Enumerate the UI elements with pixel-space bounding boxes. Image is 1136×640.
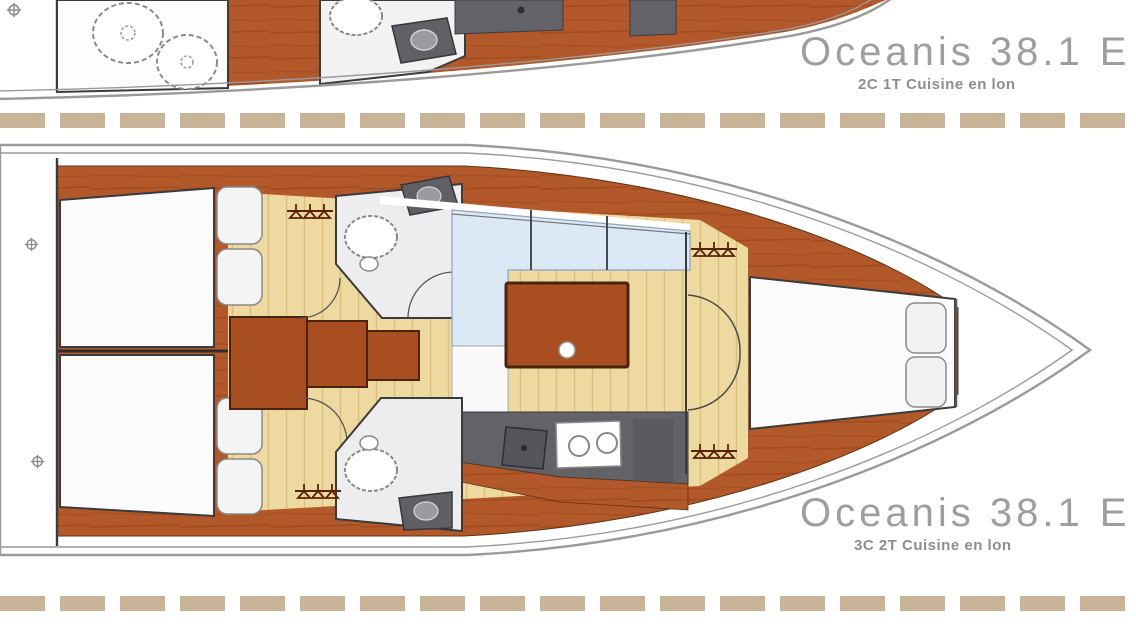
boat-name: Oceanis 38.1E [800, 492, 1136, 534]
toilet [345, 216, 397, 258]
aft-cabin-berth-port [60, 188, 214, 347]
boat-name-text: Oceanis 38.1 [800, 492, 1084, 535]
faucet-icon [518, 7, 525, 14]
toilet-base [360, 436, 378, 450]
toilet-base [360, 257, 378, 271]
sink-basin [414, 502, 438, 520]
burner-icon [597, 433, 617, 453]
boat-name-text: Oceanis 38.1 [800, 31, 1084, 74]
aft-cabin-berth-starboard [60, 355, 214, 516]
sail-bag [93, 3, 163, 63]
pillow [217, 459, 262, 514]
boat-name: Oceanis 38.1E [800, 31, 1136, 73]
fridge-unit [633, 419, 674, 482]
pillow [906, 303, 946, 353]
toilet [345, 449, 397, 491]
boat-name-suffix: E [1100, 31, 1127, 74]
step [307, 321, 367, 387]
pillow [217, 187, 262, 244]
step [230, 317, 307, 409]
boat-title-block-top: Oceanis 38.1E 2C 1T Cuisine en lon [800, 31, 1136, 93]
table-knob [559, 342, 575, 358]
sink-basin [411, 30, 437, 50]
boat-config-label: 3C 2T Cuisine en lon [854, 537, 1136, 554]
boat-config-label: 2C 1T Cuisine en lon [858, 76, 1136, 93]
boat-layout-sheet: Oceanis 38.1E 2C 1T Cuisine en lon Ocean… [0, 0, 1136, 640]
boat-title-block-bottom: Oceanis 38.1E 3C 2T Cuisine en lon [800, 492, 1136, 554]
sail-bag [157, 35, 217, 89]
galley-counter [630, 0, 676, 36]
pillow [906, 357, 946, 407]
separator-dashed-line [0, 596, 1136, 611]
burner-icon [569, 436, 589, 456]
galley-counter [455, 0, 563, 34]
cockpit-area [0, 0, 57, 94]
boat-plan-top [0, 0, 895, 99]
pillow [217, 249, 262, 305]
boat-name-suffix: E [1100, 492, 1127, 535]
separator-dashed-line [0, 113, 1136, 128]
faucet-icon [521, 445, 527, 451]
step [367, 331, 419, 380]
